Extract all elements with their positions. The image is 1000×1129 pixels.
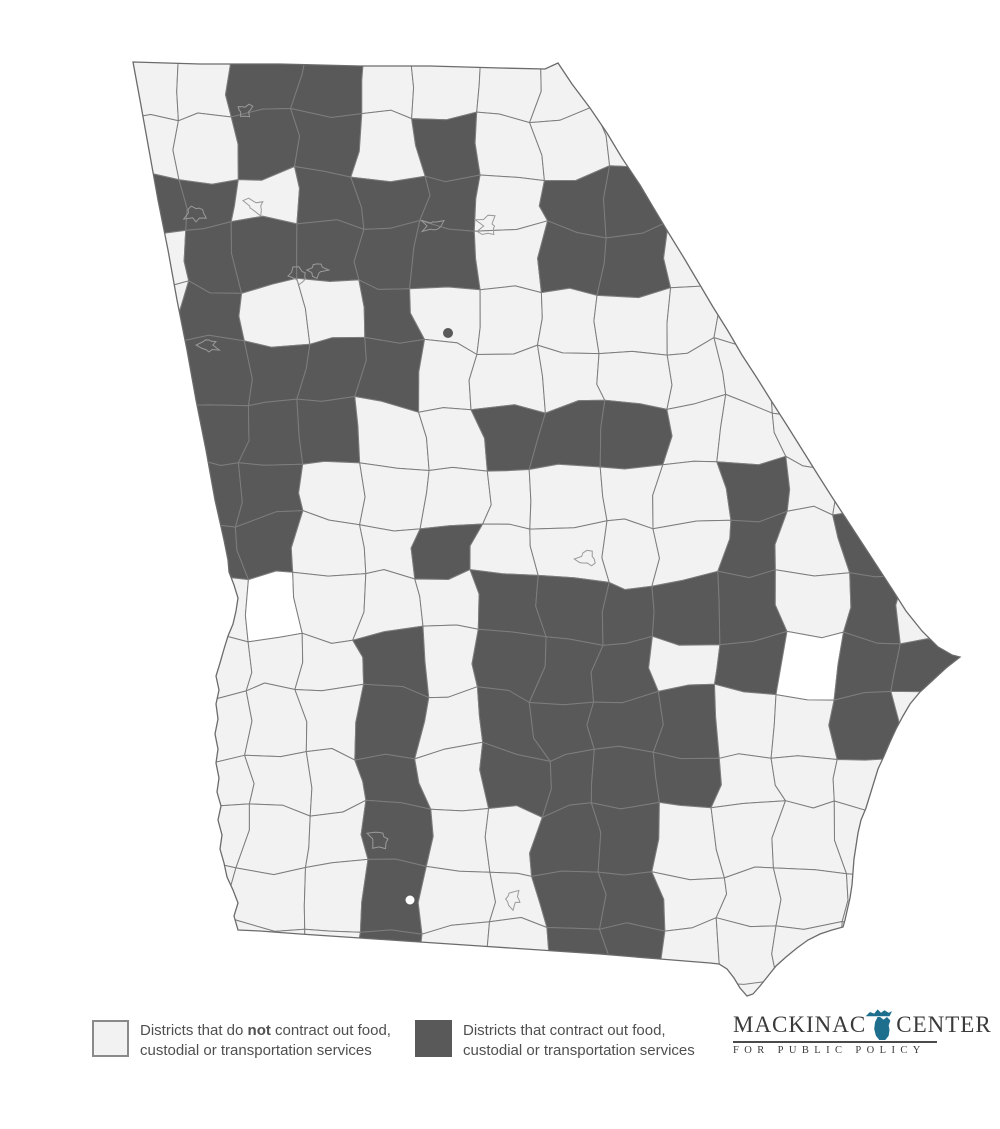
logo-word-mackinac: MACKINAC	[733, 1012, 866, 1038]
legend-line1: Districts that do not contract out food,	[140, 1021, 391, 1041]
logo-rule	[733, 1041, 937, 1043]
logo-subtitle: FOR PUBLIC POLICY	[733, 1045, 937, 1056]
michigan-icon	[864, 1004, 898, 1042]
legend-item-contract: Districts that contract out food, custod…	[415, 1020, 695, 1061]
logo-word-center: CENTER	[896, 1012, 991, 1038]
logo-wordmark: MACKINAC CENTER	[733, 1012, 937, 1038]
legend-line2: custodial or transportation services	[140, 1041, 391, 1061]
legend-swatch-dark	[415, 1020, 452, 1057]
georgia-districts-map	[0, 0, 1000, 1129]
mackinac-center-logo: MACKINAC CENTER FOR PUBLIC POLICY	[733, 1012, 937, 1056]
figure: Districts that do not contract out food,…	[0, 0, 1000, 1129]
legend-line2: custodial or transportation services	[463, 1041, 695, 1061]
legend-label-no-contract: Districts that do not contract out food,…	[140, 1020, 391, 1061]
legend-swatch-light	[92, 1020, 129, 1057]
legend-line1: Districts that contract out food,	[463, 1021, 695, 1041]
legend-label-contract: Districts that contract out food, custod…	[463, 1020, 695, 1061]
legend-item-no-contract: Districts that do not contract out food,…	[92, 1020, 391, 1061]
